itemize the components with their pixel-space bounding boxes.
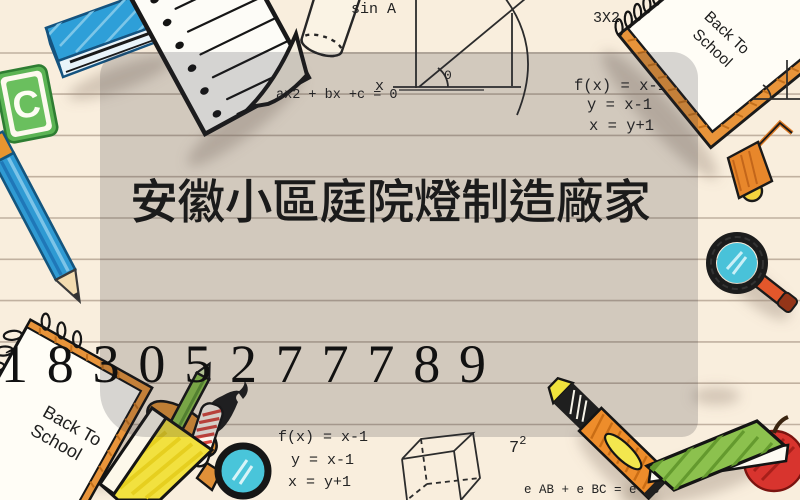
- svg-text:y = x-1: y = x-1: [291, 452, 354, 469]
- svg-text:x = y+1: x = y+1: [288, 474, 351, 491]
- svg-text:18305277789: 18305277789: [1, 334, 505, 394]
- svg-text:sin A: sin A: [351, 1, 396, 18]
